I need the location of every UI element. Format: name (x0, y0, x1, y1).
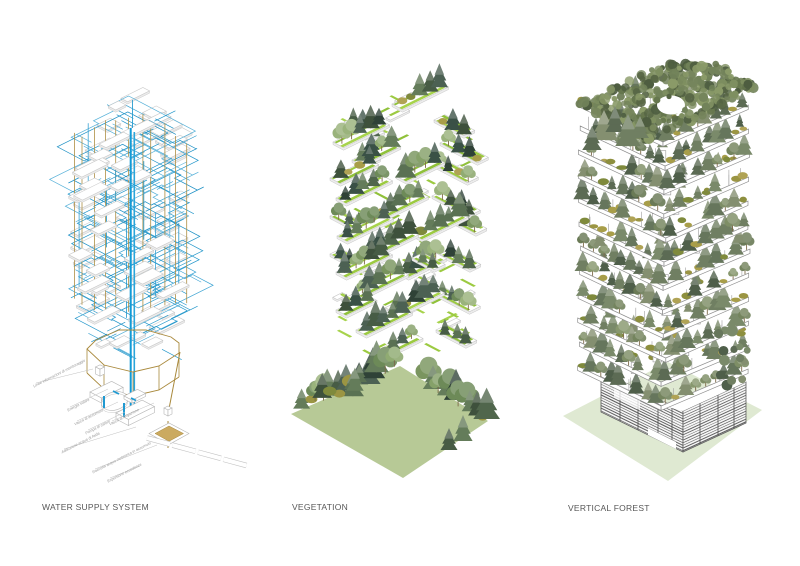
svg-text:Adduzione acqua di falda: Adduzione acqua di falda (60, 431, 101, 454)
svg-text:Energia solare: Energia solare (67, 398, 91, 413)
svg-text:Espulsione eccedenze: Espulsione eccedenze (107, 463, 143, 484)
svg-text:Linee informazioni di monitora: Linee informazioni di monitoraggio (33, 359, 86, 389)
svg-text:Raccolta acqua meteorica in ac: Raccolta acqua meteorica in accumulo (92, 441, 152, 474)
